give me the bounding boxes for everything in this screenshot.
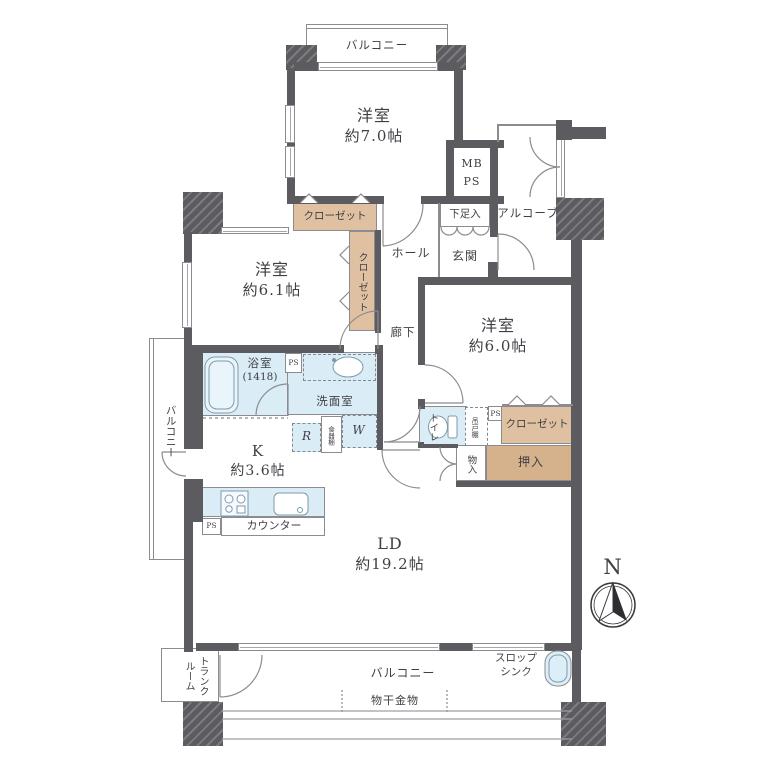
window bbox=[221, 227, 289, 234]
wall bbox=[375, 230, 381, 333]
alcove-label: アルコーブ bbox=[490, 206, 566, 221]
hall-label: ホール bbox=[384, 246, 438, 262]
door-toilet bbox=[384, 406, 420, 442]
wall bbox=[556, 120, 572, 140]
window bbox=[318, 62, 438, 71]
wall bbox=[184, 522, 193, 652]
mb-ps-label: MB PS bbox=[456, 155, 488, 190]
balcony-top-rail-line bbox=[306, 28, 448, 29]
door-storage-small bbox=[440, 447, 457, 481]
slop-sink-icon bbox=[545, 651, 571, 686]
wall bbox=[183, 192, 223, 234]
wall bbox=[440, 643, 472, 651]
wall bbox=[184, 348, 203, 522]
corridor-label: 廊下 bbox=[387, 325, 419, 340]
closet-bedroom61-label: クローゼット bbox=[355, 237, 368, 327]
entrance-step-line bbox=[438, 203, 440, 277]
room-size: 約6.0帖 bbox=[438, 337, 558, 357]
wall bbox=[418, 399, 425, 409]
balcony-left-rail-line bbox=[153, 338, 154, 560]
closet-edge-line bbox=[502, 404, 573, 406]
slop-line1: スロップ bbox=[488, 652, 544, 666]
room-size: 約3.6帖 bbox=[208, 462, 308, 480]
room-size: 約6.1帖 bbox=[212, 281, 332, 301]
room-name: LD bbox=[338, 534, 442, 555]
room-name: K bbox=[208, 442, 308, 462]
window bbox=[472, 643, 545, 651]
living-dining-label: LD 約19.2帖 bbox=[338, 534, 442, 574]
wall bbox=[183, 702, 223, 746]
door-bedroom7 bbox=[383, 204, 423, 246]
ps-label: PS bbox=[489, 409, 502, 419]
shoe-cabinet-doors bbox=[441, 227, 489, 235]
alcove-edge-line bbox=[497, 124, 557, 126]
storage-small-label: 物入 bbox=[464, 449, 476, 480]
entrance-label: 玄関 bbox=[440, 249, 490, 265]
wall bbox=[490, 148, 498, 196]
trunk-room-label: トランク ルーム bbox=[181, 650, 209, 702]
kitchen-counter-unit bbox=[202, 487, 325, 517]
washer-label: W bbox=[351, 423, 367, 439]
wall bbox=[418, 277, 582, 285]
trunk-line2: ルーム bbox=[183, 661, 194, 691]
bedroom60-label: 洋室 約6.0帖 bbox=[438, 316, 558, 356]
room-name: 洋室 bbox=[212, 260, 332, 281]
counter-label: カウンター bbox=[230, 519, 318, 533]
kitchen-label: K 約3.6帖 bbox=[208, 442, 308, 480]
closet-bedroom60-label: クローゼット bbox=[503, 418, 571, 432]
door-opening bbox=[184, 449, 203, 479]
oshiire-label: 押入 bbox=[506, 455, 556, 471]
wall bbox=[184, 345, 344, 353]
wall bbox=[545, 643, 573, 651]
balcony-railing bbox=[222, 711, 572, 739]
room-name: 洋室 bbox=[438, 316, 558, 337]
mb-text: MB bbox=[456, 155, 488, 173]
laundry-hardware-label: 物干金物 bbox=[362, 694, 428, 708]
slop-sink-label: スロップ シンク bbox=[488, 652, 544, 679]
wall bbox=[561, 702, 606, 746]
washroom-label: 洗面室 bbox=[304, 394, 366, 409]
washbasin-counter bbox=[303, 354, 376, 381]
door-trunk-room bbox=[220, 655, 262, 697]
slop-line2: シンク bbox=[488, 666, 544, 680]
window bbox=[285, 146, 295, 178]
balcony-left-label: バルコニー bbox=[163, 384, 177, 478]
room-size: 約19.2帖 bbox=[338, 555, 442, 575]
balcony-top-label: バルコニー bbox=[341, 38, 413, 53]
window bbox=[285, 105, 295, 143]
wall bbox=[446, 140, 504, 148]
alcove-edge-line bbox=[497, 124, 499, 142]
bedroom7-label: 洋室 約7.0帖 bbox=[314, 106, 434, 146]
compass-north-label: N bbox=[597, 554, 629, 581]
wall bbox=[377, 352, 383, 450]
window bbox=[182, 262, 192, 328]
compass-icon bbox=[591, 582, 635, 627]
ps-label: PS bbox=[203, 521, 220, 531]
trunk-line1: トランク bbox=[197, 656, 208, 696]
wall bbox=[572, 650, 581, 702]
toilet-label: トイレ bbox=[426, 409, 438, 446]
room-name: 洋室 bbox=[314, 106, 434, 127]
closet-bedroom7-label: クローゼット bbox=[295, 210, 375, 224]
room-size: (1418) bbox=[232, 371, 288, 385]
bathroom-label: 浴室 (1418) bbox=[232, 356, 288, 385]
shoe-cabinet-label: 下足入 bbox=[442, 208, 488, 222]
dish-shelf-label: 食器棚 bbox=[326, 421, 334, 451]
wall bbox=[456, 481, 574, 487]
bedroom61-label: 洋室 約6.1帖 bbox=[212, 260, 332, 300]
door-entrance bbox=[498, 234, 534, 270]
door-bedroom60 bbox=[425, 365, 463, 403]
wall bbox=[454, 68, 463, 148]
balcony-bottom-label: バルコニー bbox=[366, 666, 440, 682]
wall bbox=[294, 62, 320, 71]
ps-label: PS bbox=[286, 358, 301, 368]
wall bbox=[287, 196, 384, 204]
door-corridor-ld bbox=[382, 450, 420, 488]
room-name: 浴室 bbox=[232, 356, 288, 371]
floor-plan: バルコニー 洋室 約7.0帖 MB PS アルコーブ 下足入 玄関 ホール クロ… bbox=[0, 0, 768, 768]
wall bbox=[418, 285, 425, 365]
ps-text: PS bbox=[456, 173, 488, 191]
window bbox=[238, 643, 440, 651]
hanging-cupboard-label: 吊戸棚 bbox=[470, 410, 479, 444]
wall bbox=[184, 232, 192, 262]
wall bbox=[571, 240, 582, 650]
room-size: 約7.0帖 bbox=[314, 127, 434, 147]
wall bbox=[572, 127, 606, 139]
